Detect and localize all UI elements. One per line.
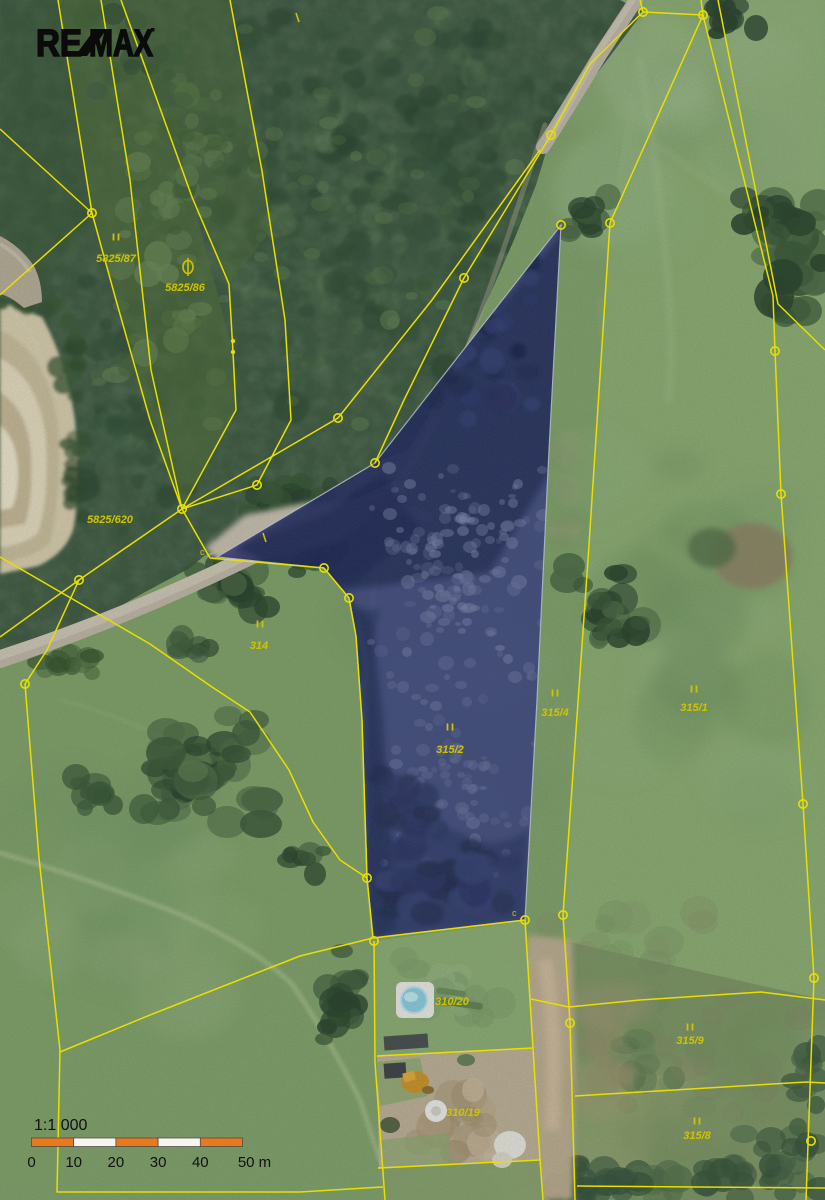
svg-text:40: 40 — [192, 1154, 209, 1171]
svg-text:MAX: MAX — [89, 23, 153, 65]
svg-text:315/2: 315/2 — [436, 744, 464, 756]
svg-text:310/19: 310/19 — [446, 1107, 481, 1119]
svg-text:50 m: 50 m — [238, 1154, 271, 1171]
svg-text:5825/86: 5825/86 — [165, 282, 206, 294]
svg-text:315/9: 315/9 — [676, 1035, 704, 1047]
svg-text:315/1: 315/1 — [680, 702, 708, 714]
svg-text:310/20: 310/20 — [435, 996, 470, 1008]
svg-text:RE: RE — [36, 23, 82, 65]
svg-text:0: 0 — [27, 1154, 35, 1171]
svg-text:5825/620: 5825/620 — [87, 514, 134, 526]
svg-text:315/8: 315/8 — [683, 1130, 711, 1142]
svg-text:30: 30 — [150, 1154, 167, 1171]
svg-text:c: c — [512, 908, 517, 918]
svg-text:1:1 000: 1:1 000 — [34, 1117, 87, 1134]
svg-text:314: 314 — [250, 640, 268, 652]
svg-text:c: c — [200, 547, 205, 557]
svg-text:20: 20 — [108, 1154, 125, 1171]
svg-text:315/4: 315/4 — [541, 707, 569, 719]
svg-text:10: 10 — [65, 1154, 82, 1171]
svg-text:5825/87: 5825/87 — [96, 253, 137, 265]
